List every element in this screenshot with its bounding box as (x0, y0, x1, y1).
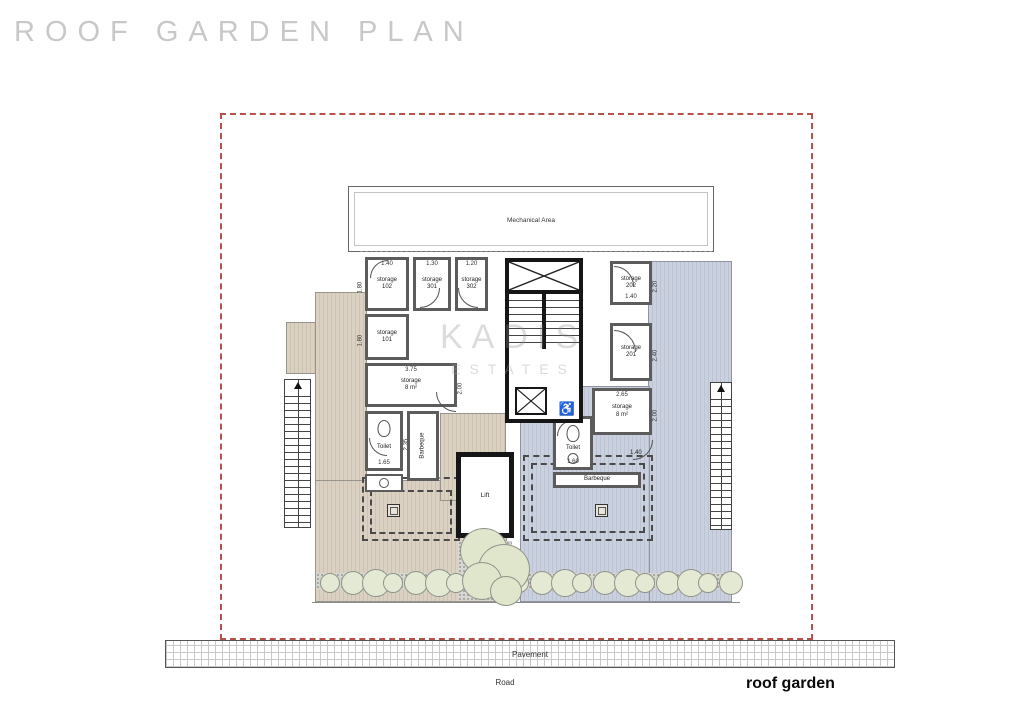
dim-label: 1.40 (625, 294, 637, 301)
shrub (383, 573, 403, 593)
dim-label: 2.00 (458, 383, 465, 395)
sink-counter-left (365, 474, 403, 492)
room-barbeque-right: Barbeque (553, 472, 641, 488)
fixture-symbol-right (595, 504, 608, 517)
mechanical-area-label: Mechanical Area (349, 217, 713, 224)
stair-core: ♿ (505, 258, 583, 423)
stair-flight (509, 294, 579, 349)
wc-fixture (378, 420, 391, 437)
shrub (698, 573, 718, 593)
shrub (572, 573, 592, 593)
floor-plan-page: ROOF GARDEN PLAN Mechanical Area storage… (0, 0, 1024, 715)
shaft-cross-box (509, 262, 579, 294)
page-title: ROOF GARDEN PLAN (14, 16, 474, 49)
dim-label: 1.30 (426, 261, 438, 268)
external-stair-right (710, 382, 732, 530)
dim-label: 1.20 (466, 261, 478, 268)
dim-label: 1.80 (357, 335, 364, 347)
mechanical-area: Mechanical Area (348, 186, 714, 252)
building-base-line (312, 602, 740, 603)
room-number: 101 (382, 337, 392, 344)
external-stair-left (284, 379, 311, 528)
dim-label: 2.40 (653, 350, 660, 362)
cross-lines (509, 262, 579, 290)
stair-stringer (721, 383, 722, 529)
tree-canopy (490, 576, 522, 606)
dim-label: 2.00 (653, 409, 660, 421)
dim-label: 1.60 (567, 459, 579, 466)
pavement-label: Pavement (512, 650, 548, 659)
shrub (635, 573, 655, 593)
pavement-strip: Pavement (165, 640, 895, 668)
deck-left-extension (286, 322, 316, 374)
room-toilet-right: Toilet 1.60 (553, 416, 593, 470)
room-label: storage (612, 404, 632, 411)
stair-direction-arrow (717, 385, 725, 392)
roof-edge-dashed-line (360, 251, 712, 252)
room-storage-right-8sqm: storage 8 m² 2.65 2.00 (592, 388, 652, 435)
drawing-caption: roof garden (746, 675, 835, 693)
shrub (719, 571, 743, 595)
duct-cross-box (515, 387, 547, 415)
dim-label: 1.65 (378, 460, 390, 467)
room-area: 8 m² (405, 385, 417, 392)
room-barbeque-left: Barbeque (407, 411, 439, 481)
room-label: Toilet (566, 445, 580, 452)
room-number: 102 (382, 284, 392, 291)
lift-shaft: Lift (456, 452, 514, 538)
pergola-outline-left-inner (370, 490, 452, 534)
room-number: 201 (626, 352, 636, 359)
dim-label: 1.80 (357, 282, 364, 294)
road-label: Road (440, 678, 570, 687)
room-label: Barbeque (584, 476, 610, 483)
room-label: storage (461, 277, 481, 284)
shrub (320, 573, 340, 593)
room-storage-101: storage 101 1.80 (365, 314, 409, 360)
stair-direction-arrow (294, 382, 302, 389)
room-label: Barbeque (419, 433, 426, 459)
room-label: storage (377, 330, 397, 337)
dim-label: 2.65 (616, 392, 628, 399)
lift-label: Lift (481, 492, 490, 499)
cross-lines (517, 389, 545, 413)
wheelchair-icon: ♿ (559, 402, 575, 415)
dim-label: 3.75 (405, 367, 417, 374)
fixture-symbol-left (387, 504, 400, 517)
room-label: storage (401, 378, 421, 385)
room-area: 8 m² (616, 412, 628, 419)
stair-stringer (298, 380, 299, 527)
room-label: storage (422, 277, 442, 284)
dim-label: 2.20 (653, 281, 660, 293)
